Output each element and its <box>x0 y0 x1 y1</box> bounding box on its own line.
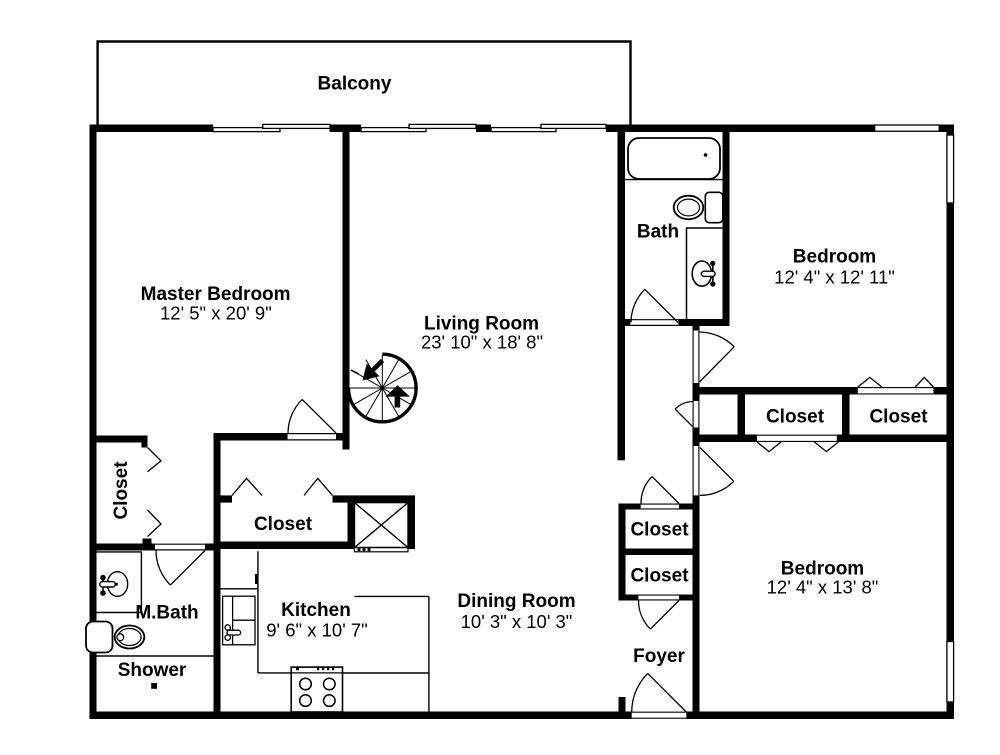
svg-text:Bath: Bath <box>637 221 679 242</box>
svg-text:Bedroom: Bedroom <box>793 246 876 267</box>
svg-text:9' 6" x 10' 7": 9' 6" x 10' 7" <box>266 620 367 641</box>
svg-text:Closet: Closet <box>869 406 928 427</box>
svg-text:Closet: Closet <box>630 565 689 586</box>
svg-text:Shower: Shower <box>118 660 187 681</box>
svg-text:23' 10" x 18' 8": 23' 10" x 18' 8" <box>421 332 543 353</box>
svg-text:12' 4" x 12' 11": 12' 4" x 12' 11" <box>774 267 895 288</box>
svg-text:Dining Room: Dining Room <box>457 591 575 612</box>
svg-text:Foyer: Foyer <box>633 646 685 667</box>
svg-text:Closet: Closet <box>630 519 689 540</box>
svg-text:Kitchen: Kitchen <box>281 600 351 621</box>
svg-text:12' 5" x 20' 9": 12' 5" x 20' 9" <box>160 303 272 324</box>
svg-text:Balcony: Balcony <box>318 74 392 95</box>
svg-text:12' 4" x 13' 8": 12' 4" x 13' 8" <box>767 577 879 598</box>
svg-text:Closet: Closet <box>254 514 313 535</box>
svg-text:10' 3" x 10' 3": 10' 3" x 10' 3" <box>461 611 573 632</box>
svg-text:M.Bath: M.Bath <box>135 602 198 623</box>
svg-text:Closet: Closet <box>111 461 132 520</box>
svg-text:Closet: Closet <box>766 406 825 427</box>
